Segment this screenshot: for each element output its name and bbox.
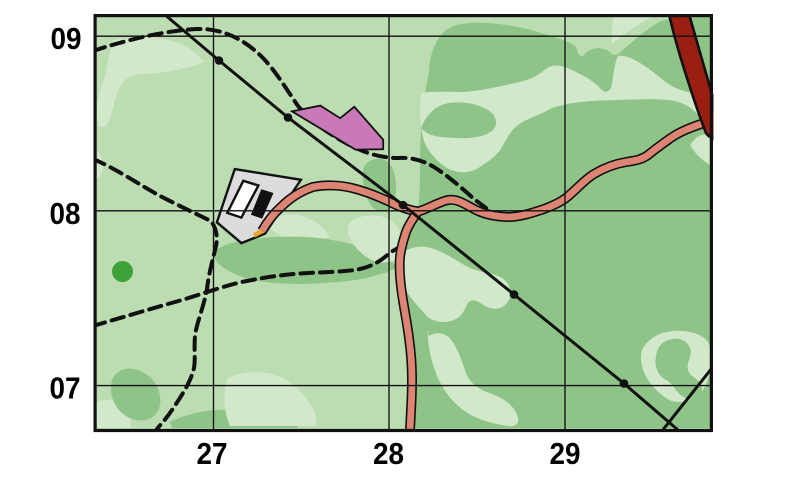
svg-text:09: 09 — [51, 21, 82, 56]
svg-text:27: 27 — [197, 436, 228, 471]
svg-text:08: 08 — [50, 196, 81, 231]
svg-text:29: 29 — [550, 436, 581, 471]
svg-text:28: 28 — [373, 436, 404, 471]
svg-text:07: 07 — [50, 371, 81, 406]
